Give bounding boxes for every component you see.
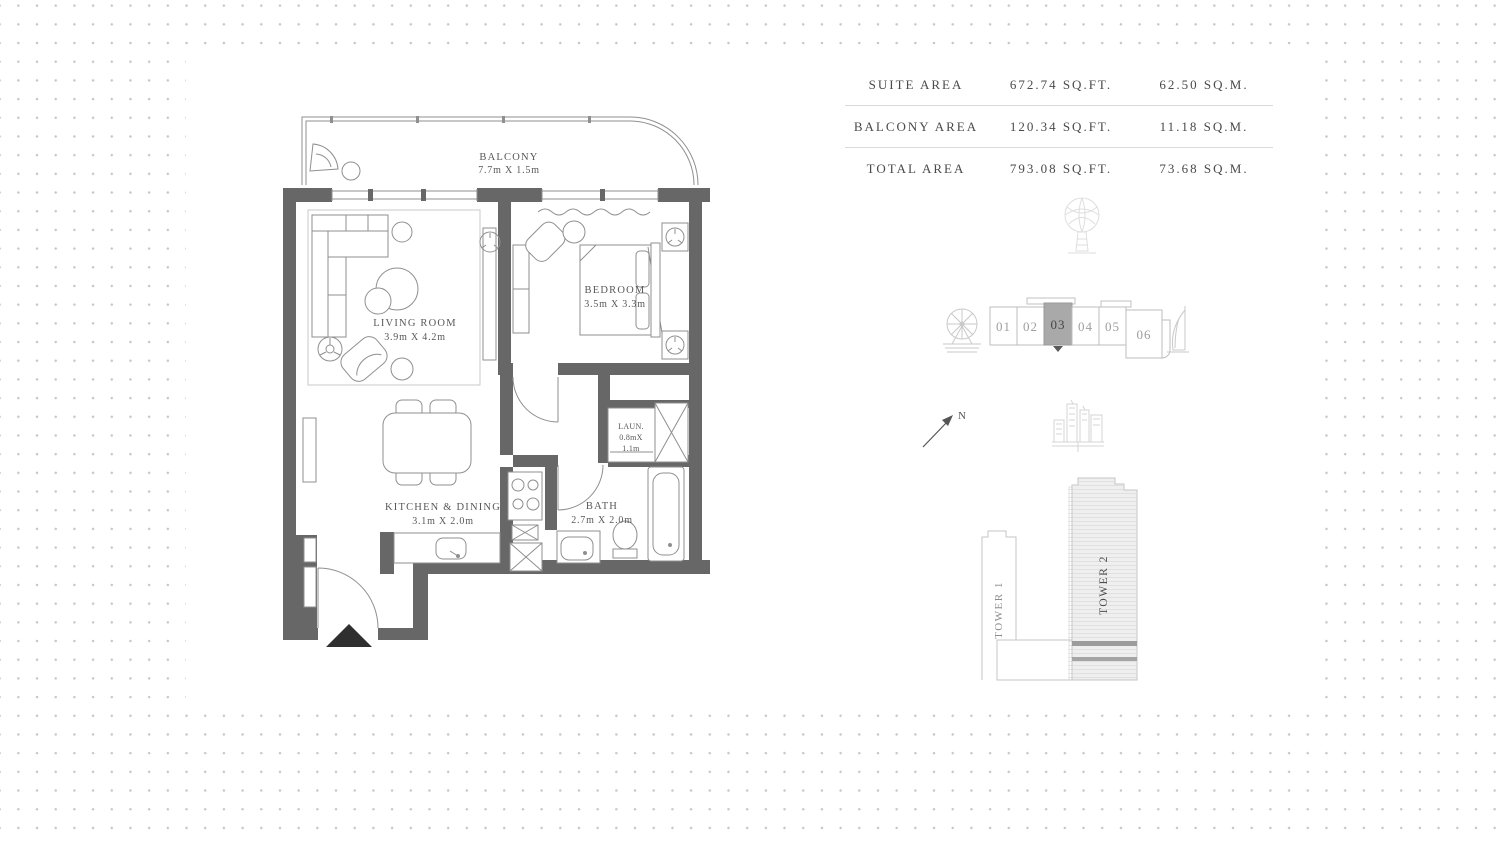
ceiling-fan-icon — [318, 337, 342, 361]
north-arrow-icon: N — [915, 403, 970, 453]
floor-plan: LIVING ROOM 3.9m X 4.2m BEDROOM 3.5m X 3… — [280, 105, 720, 655]
unit-02-label[interactable]: 02 — [1023, 319, 1038, 334]
unit-06-label[interactable]: 06 — [1137, 327, 1152, 342]
suite-area-sqm: 62.50 SQ.M. — [1135, 77, 1273, 93]
living-room-label: LIVING ROOM — [373, 318, 457, 329]
curtain-line — [538, 209, 650, 215]
laundry-dims-2: 1.1m — [622, 444, 640, 453]
towers-diagram: TOWER 1 TOWER 2 — [975, 465, 1150, 687]
laundry-dims-1: 0.8mX — [619, 433, 643, 442]
cooktop — [508, 472, 542, 520]
entry-marker-icon — [326, 624, 372, 647]
floorplan-page: { "area_table": { "rows": [ {"label": "S… — [0, 0, 1500, 842]
balcony-lounge-chair — [310, 144, 338, 171]
side-table — [392, 222, 412, 242]
palm-tree-icon — [1056, 193, 1108, 255]
unit-01-label[interactable]: 01 — [996, 319, 1011, 334]
bath-label: BATH — [586, 501, 618, 512]
city-skyline-icon — [1050, 396, 1106, 452]
coffee-tables — [365, 268, 418, 314]
area-table: SUITE AREA 672.74 SQ.FT. 62.50 SQ.M. BAL… — [845, 64, 1273, 189]
highlight-band-2 — [1072, 657, 1137, 661]
total-area-sqft: 793.08 SQ.FT. — [987, 161, 1135, 177]
balcony-area-label: BALCONY AREA — [845, 119, 987, 135]
armchair — [337, 333, 391, 386]
balcony-area-sqft: 120.34 SQ.FT. — [987, 119, 1135, 135]
nightstand-bottom — [662, 331, 688, 359]
bedroom-table — [563, 221, 585, 243]
highlight-band-1 — [1072, 641, 1137, 646]
toilet — [613, 521, 637, 558]
tower-2-label: TOWER 2 — [1098, 555, 1110, 615]
unit-03-label[interactable]: 03 — [1051, 317, 1066, 332]
entry-door — [318, 568, 378, 628]
balcony-label: BALCONY — [479, 152, 538, 163]
table-row-balcony: BALCONY AREA 120.34 SQ.FT. 11.18 SQ.M. — [845, 105, 1273, 147]
unit-04-label[interactable]: 04 — [1078, 319, 1093, 334]
balcony-table — [342, 162, 360, 180]
unit-05-label[interactable]: 05 — [1105, 319, 1120, 334]
bath-dims: 2.7m X 2.0m — [571, 515, 633, 526]
balcony-area-sqm: 11.18 SQ.M. — [1135, 119, 1273, 135]
tower-1-label: TOWER 1 — [993, 581, 1005, 639]
nightstand-top — [662, 223, 688, 251]
kitchen-label: KITCHEN & DINING — [385, 502, 501, 513]
podium — [997, 640, 1073, 680]
side-table-2 — [391, 358, 413, 380]
wall-niches — [303, 418, 316, 607]
ferris-wheel-icon — [943, 309, 981, 352]
selected-unit-marker — [1053, 346, 1063, 352]
tv-console — [480, 228, 500, 360]
north-label: N — [958, 410, 966, 422]
unit-selector: 01 02 03 04 05 06 — [935, 292, 1190, 367]
vanity-sink — [557, 531, 600, 563]
total-area-sqm: 73.68 SQ.M. — [1135, 161, 1273, 177]
kitchen-counter — [394, 533, 500, 563]
table-row-suite: SUITE AREA 672.74 SQ.FT. 62.50 SQ.M. — [845, 64, 1273, 105]
suite-area-sqft: 672.74 SQ.FT. — [987, 77, 1135, 93]
laundry-label: LAUN. — [618, 422, 644, 431]
shaft-box-kitchen — [510, 543, 542, 571]
dining-set — [383, 400, 471, 485]
tower-2: TOWER 2 — [1069, 478, 1137, 680]
table-row-total: TOTAL AREA 793.08 SQ.FT. 73.68 SQ.M. — [845, 147, 1273, 189]
shaft-box-small — [512, 525, 538, 540]
bathtub — [648, 467, 684, 561]
kitchen-dims: 3.1m X 2.0m — [412, 516, 474, 527]
bedroom-dims: 3.5m X 3.3m — [584, 299, 646, 310]
bedroom-door — [513, 377, 558, 422]
shaft-box — [655, 403, 688, 462]
suite-area-label: SUITE AREA — [845, 77, 987, 93]
living-room-dims: 3.9m X 4.2m — [384, 332, 446, 343]
balcony-dims: 7.7m X 1.5m — [478, 165, 540, 176]
wardrobe — [513, 245, 529, 333]
bedroom-label: BEDROOM — [585, 285, 646, 296]
total-area-label: TOTAL AREA — [845, 161, 987, 177]
